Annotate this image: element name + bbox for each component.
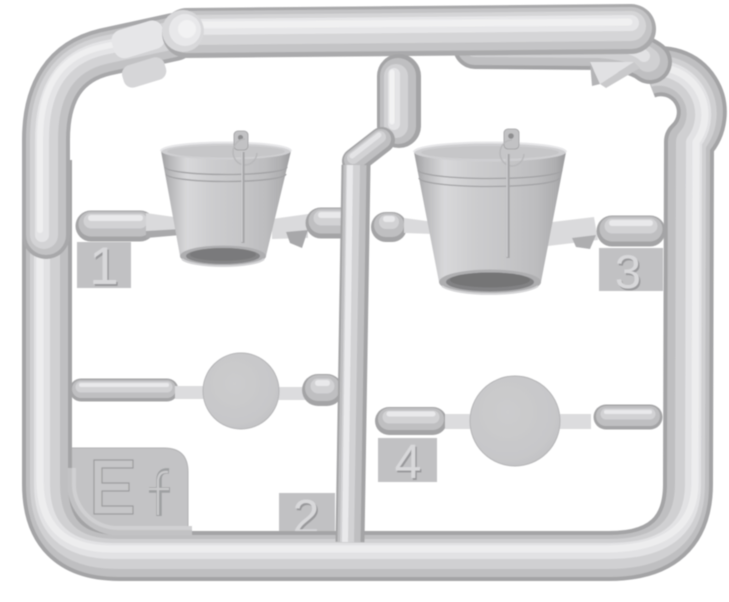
- svg-text:1: 1: [89, 237, 118, 296]
- svg-text:4: 4: [395, 436, 422, 489]
- svg-text:3: 3: [615, 245, 641, 298]
